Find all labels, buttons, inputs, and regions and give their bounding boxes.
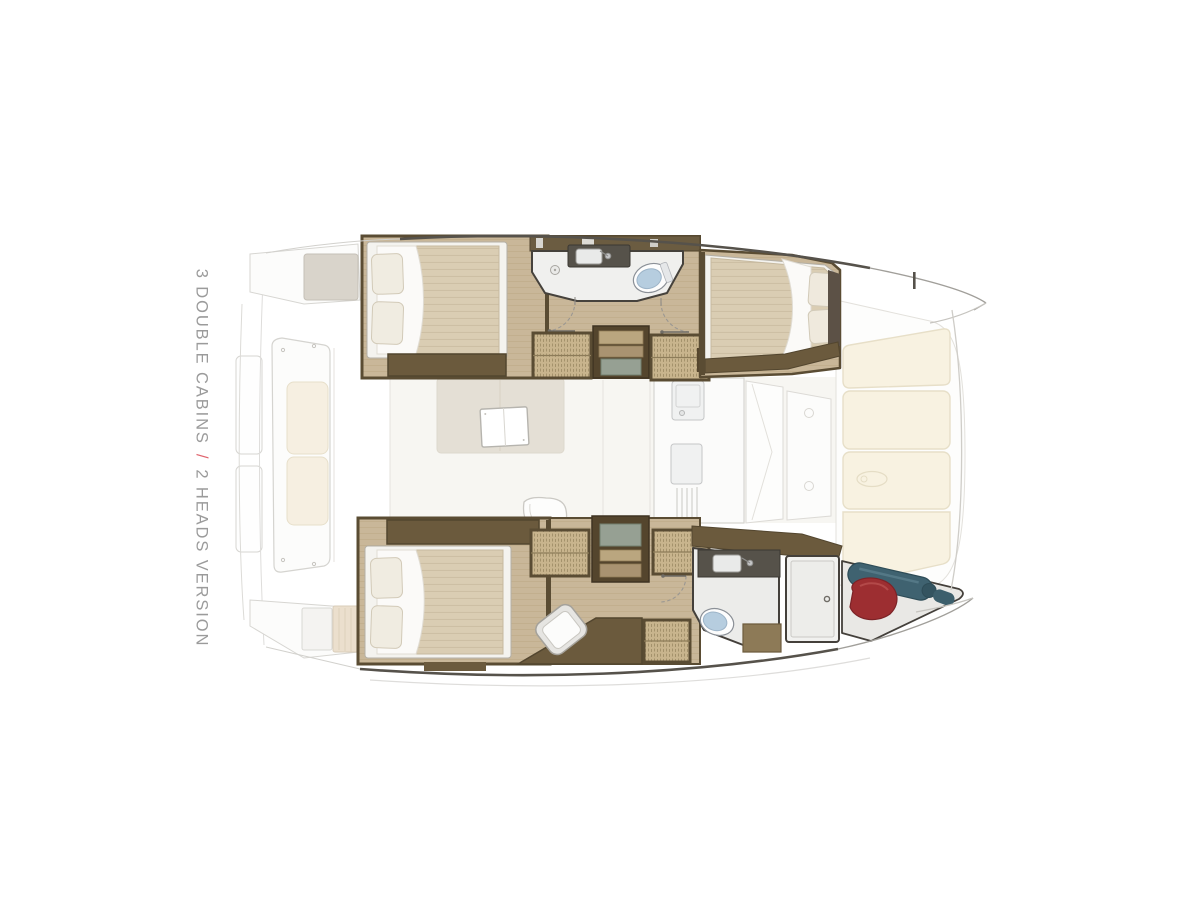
port-aft-bed: [365, 546, 511, 658]
forward-door: [787, 391, 831, 520]
label-cabins-text: 3 DOUBLE CABINS: [193, 269, 211, 445]
pillow: [371, 253, 403, 294]
bow-deck: [836, 300, 965, 588]
label-heads-text: 2 HEADS VERSION: [193, 469, 211, 647]
pillow: [371, 301, 403, 344]
transom-steps: [236, 255, 264, 645]
cabinet: [743, 624, 781, 652]
wicker-seat: [644, 620, 690, 662]
cockpit-bench: [272, 338, 334, 572]
layout-version-label: 3 DOUBLE CABINS/2 HEADS VERSION: [192, 269, 211, 648]
page: 3 DOUBLE CABINS/2 HEADS VERSION: [0, 0, 1200, 900]
sink: [568, 245, 630, 267]
stern-seat-port: [250, 600, 358, 658]
wardrobe: [387, 520, 539, 544]
wicker-seat: [531, 530, 589, 576]
bow-cushions: [843, 329, 950, 585]
sink: [698, 550, 780, 577]
forward-cockpit: [746, 381, 831, 523]
wicker-seat: [533, 333, 591, 378]
starboard-forward-cabin: [700, 250, 840, 377]
bow-cleat: [913, 272, 916, 289]
pillow: [370, 557, 402, 598]
galley-stove: [671, 444, 702, 484]
saloon-table: [480, 407, 529, 447]
companionway-stairs: [593, 326, 649, 378]
pillow: [370, 605, 402, 648]
port-aft-cabin: [358, 518, 550, 671]
port-head: [692, 526, 842, 652]
catamaran-floor-plan: [230, 228, 990, 688]
galley-sink: [672, 381, 704, 420]
label-separator: /: [193, 454, 211, 460]
galley: [654, 378, 744, 523]
starboard-hull: [362, 236, 840, 380]
red-bag: [850, 578, 897, 620]
wardrobe: [388, 354, 506, 376]
companionway-stairs: [592, 516, 649, 582]
starboard-head: [532, 245, 683, 301]
starboard-midship: [530, 236, 709, 380]
shower-stall: [786, 556, 839, 642]
starboard-aft-bed: [367, 242, 507, 358]
starboard-aft-cabin: [362, 236, 549, 378]
